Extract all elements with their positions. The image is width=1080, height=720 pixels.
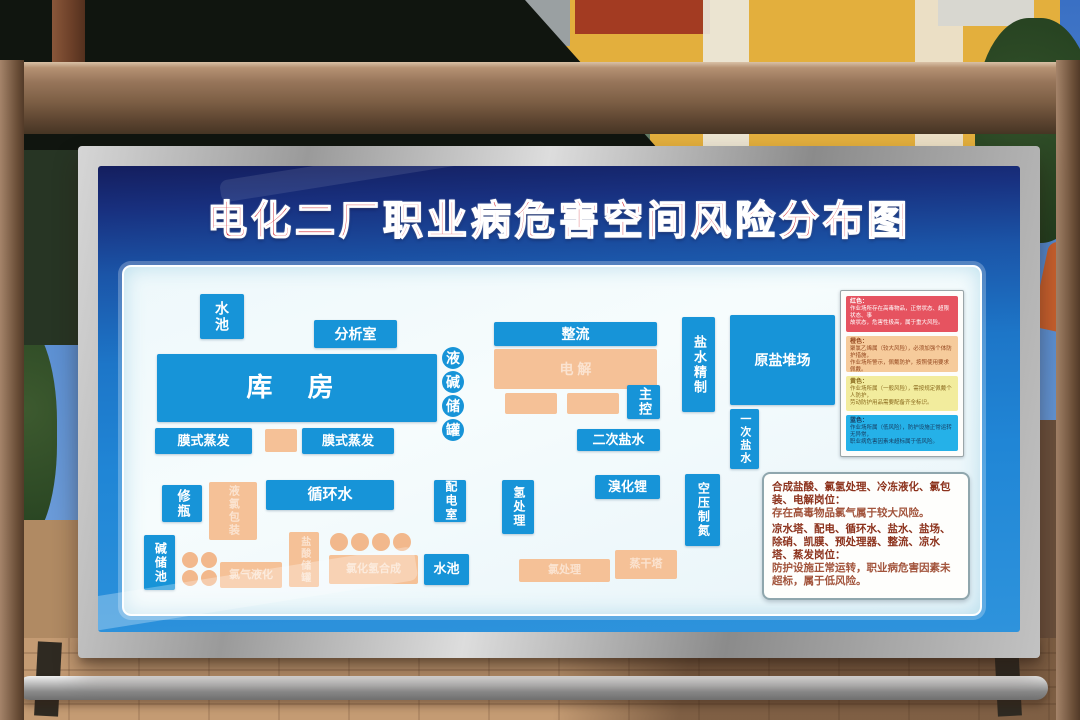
diagram-box-zhengganta: 蒸干塔 — [615, 550, 677, 579]
diagram-box-zhukong: 主控 — [627, 385, 660, 419]
diagram-box-peidianshi: 配电室 — [434, 480, 466, 522]
diagram-box-yici-yanshui: 一次盐水 — [730, 409, 759, 469]
diagram-box-moshizhengfa-left: 膜式蒸发 — [155, 428, 252, 454]
yejian-chuguan-circle: 罐 — [442, 419, 464, 441]
diagram-box-fenxishi: 分析室 — [314, 320, 397, 348]
diagram-box-orange-mid — [265, 429, 297, 452]
legend-strip-orange: 橙色：聚氯乙烯属（较大风险），必须加强个体防护措施，作业场所警示，佩戴防护，按照… — [846, 336, 958, 372]
bottom-steel-rail — [18, 676, 1048, 700]
legend-strip-line: 作业场所属（低风险），防护设施正常运转无异常， — [850, 425, 954, 439]
tanks-row4-circle — [372, 533, 390, 551]
diagram-box-orange-b — [567, 393, 619, 414]
diagram-box-dianjie: 电 解 — [494, 349, 657, 389]
yejian-chuguan-circle: 储 — [442, 395, 464, 417]
tanks-row4-circle — [330, 533, 348, 551]
diagram-panel: 水池分析室库 房膜式蒸发膜式蒸发修瓶液氯包装循环水配电室碱储池氯气液化盐酸储罐氯… — [122, 265, 982, 616]
legend-strip-line: 劳动防护用品需要配备齐全标识。 — [850, 400, 954, 407]
diagram-box-kufang: 库 房 — [157, 354, 437, 422]
rusty-pole — [52, 0, 85, 66]
legend-strip-line: 聚氯乙烯属（较大风险），必须加强个体防护措施， — [850, 346, 954, 360]
poster: 电化二厂职业病危害空间风险分布图 水池分析室库 房膜式蒸发膜式蒸发修瓶液氯包装循… — [98, 166, 1020, 632]
shelter-post-left — [0, 60, 24, 720]
tanks-2x2-circle — [182, 552, 198, 568]
info-section-head: 凉水塔、配电、循环水、盐水、盐场、除硝、凯膜、预处理器、整流、凉水塔、蒸发岗位： — [772, 523, 951, 561]
diagram-box-moshizhengfa-right: 膜式蒸发 — [302, 428, 394, 454]
stainless-board-frame: 电化二厂职业病危害空间风险分布图 水池分析室库 房膜式蒸发膜式蒸发修瓶液氯包装循… — [78, 146, 1040, 658]
diagram-box-kongya-zhidan: 空压制氮 — [685, 474, 720, 546]
diagram-box-orange-a — [505, 393, 557, 414]
legend-strip-yellow: 黄色：作业场所属（一般风险），需按规定佩戴个人防护，劳动防护用品需要配备齐全标识… — [846, 376, 958, 412]
tanks-row4-circle — [351, 533, 369, 551]
diagram-box-shuichi-bottom: 水池 — [424, 554, 469, 585]
diagram-box-yuanyan-duichang: 原盐堆场 — [730, 315, 835, 405]
tanks-2x2-circle — [201, 552, 217, 568]
legend-strip-line: 作业场所属（一般风险），需按规定佩戴个人防护， — [850, 386, 954, 400]
diagram-box-erci-yanshui: 二次盐水 — [577, 429, 660, 451]
shelter-post-right — [1056, 60, 1080, 720]
photo-scene: 电化二厂职业病危害空间风险分布图 水池分析室库 房膜式蒸发膜式蒸发修瓶液氯包装循… — [0, 0, 1080, 720]
info-section-head: 合成盐酸、氯氢处理、冷冻液化、氯包装、电解岗位： — [772, 481, 951, 506]
legend-strip-line: 作业场所警示，佩戴防护，按照使用要求佩戴。 — [850, 360, 954, 372]
legend-strip-red: 红色：作业场所存在高毒物品，正常状态、超限状态、事故状态，危害性极高，属于重大风… — [846, 296, 958, 332]
legend-strip-title: 红色： — [850, 298, 954, 306]
diagram-box-xunhuanshui: 循环水 — [266, 480, 394, 510]
diagram-box-lvchuli: 氯处理 — [519, 559, 610, 582]
risk-legend: 红色：作业场所存在高毒物品，正常状态、超限状态、事故状态，危害性极高，属于重大风… — [840, 290, 964, 457]
legend-strip-line: 故状态，危害性极高，属于重大风险。 — [850, 320, 954, 327]
diagram-box-jianchuchi: 碱储池 — [144, 535, 175, 590]
poster-title: 电化二厂职业病危害空间风险分布图 — [98, 188, 1020, 246]
legend-strip-title: 橙色： — [850, 338, 954, 346]
risk-info-box: 合成盐酸、氯氢处理、冷冻液化、氯包装、电解岗位：存在高毒物品氯气属于较大风险。凉… — [762, 472, 970, 600]
info-section: 合成盐酸、氯氢处理、冷冻液化、氯包装、电解岗位：存在高毒物品氯气属于较大风险。 — [772, 481, 960, 520]
diagram-box-xiuping: 修瓶 — [162, 485, 202, 522]
diagram-box-zhengliu: 整流 — [494, 322, 657, 346]
diagram-box-yanshui-jingzhi: 盐水精制 — [682, 317, 715, 412]
legend-strip-blue: 蓝色：作业场所属（低风险），防护设施正常运转无异常，职业病危害因素未超标属于低风… — [846, 415, 958, 451]
info-section-body: 防护设施正常运转，职业病危害因素未超标，属于低风险。 — [772, 562, 951, 587]
yejian-chuguan-circle: 碱 — [442, 371, 464, 393]
diagram-box-shuichi-top: 水池 — [200, 294, 244, 339]
yejian-chuguan-circle: 液 — [442, 347, 464, 369]
diagram-box-qingchuli: 氢处理 — [502, 480, 534, 534]
legend-strip-line: 作业场所存在高毒物品，正常状态、超限状态、事 — [850, 306, 954, 320]
info-section-body: 存在高毒物品氯气属于较大风险。 — [772, 507, 930, 519]
red-roof — [575, 0, 710, 34]
info-section: 凉水塔、配电、循环水、盐水、盐场、除硝、凯膜、预处理器、整流、凉水塔、蒸发岗位：… — [772, 523, 960, 588]
legend-strip-title: 黄色： — [850, 378, 954, 386]
diagram-box-yelv-baozhuang: 液氯包装 — [209, 482, 257, 540]
diagram-box-xiuhuali: 溴化锂 — [595, 475, 660, 499]
shelter-top-bar — [0, 62, 1080, 134]
legend-strip-line: 职业病危害因素未超标属于低风险。 — [850, 439, 954, 446]
